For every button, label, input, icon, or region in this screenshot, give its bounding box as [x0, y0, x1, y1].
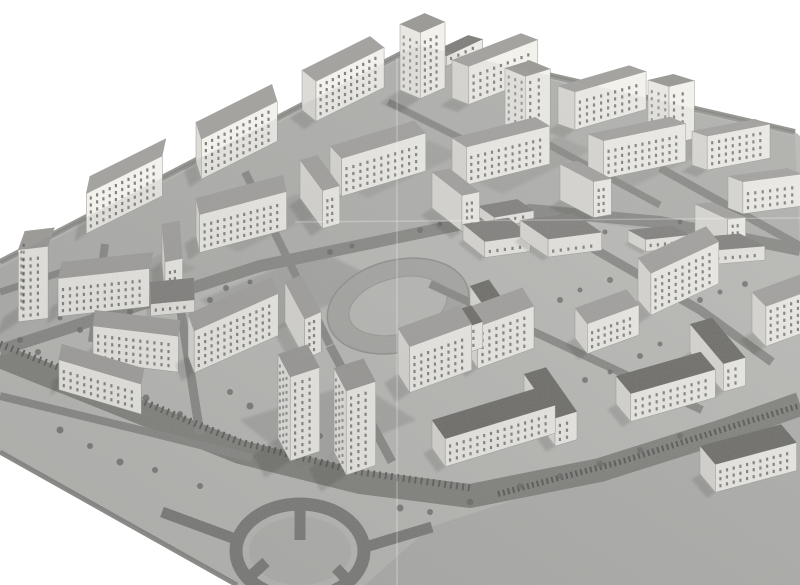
window — [628, 86, 630, 89]
window — [134, 182, 136, 185]
window — [230, 129, 232, 132]
window — [102, 197, 104, 200]
window — [140, 172, 142, 175]
window — [635, 84, 637, 87]
window — [368, 67, 370, 70]
window — [146, 168, 148, 171]
window — [362, 70, 364, 73]
window — [409, 38, 411, 41]
window — [403, 43, 405, 46]
window — [430, 38, 432, 41]
window — [121, 188, 123, 191]
window — [635, 91, 637, 94]
window — [217, 143, 219, 146]
window — [326, 88, 328, 91]
window — [211, 139, 213, 142]
window — [153, 165, 155, 168]
window — [350, 76, 352, 79]
window — [255, 124, 257, 127]
window — [249, 127, 251, 130]
window — [140, 179, 142, 182]
window — [344, 79, 346, 82]
window — [242, 130, 244, 133]
window — [140, 186, 142, 189]
window — [146, 182, 148, 185]
window — [102, 190, 104, 193]
window — [224, 133, 226, 136]
window — [236, 133, 238, 136]
window — [527, 53, 529, 56]
window — [416, 41, 418, 44]
window — [403, 36, 405, 39]
window — [96, 193, 98, 196]
window — [146, 175, 148, 178]
window — [651, 90, 653, 93]
window — [109, 194, 111, 197]
window — [153, 172, 155, 175]
photo-vignette — [0, 45, 800, 585]
window — [217, 136, 219, 139]
window — [435, 35, 437, 38]
window — [224, 140, 226, 143]
window — [658, 92, 660, 95]
window — [127, 192, 129, 195]
window — [368, 60, 370, 63]
photo-grain-and-creases — [0, 45, 800, 585]
window — [682, 99, 684, 102]
window — [267, 111, 269, 114]
window — [255, 117, 257, 120]
window — [356, 73, 358, 76]
window — [682, 92, 684, 95]
window — [249, 120, 251, 123]
window — [109, 187, 111, 190]
architectural-model-scene — [0, 0, 800, 585]
window — [320, 84, 322, 87]
window — [127, 178, 129, 181]
window — [121, 181, 123, 184]
window — [261, 114, 263, 117]
window — [374, 57, 376, 60]
window — [90, 196, 92, 199]
window — [664, 94, 666, 97]
window — [320, 91, 322, 94]
window — [115, 184, 117, 187]
window — [409, 45, 411, 48]
window — [134, 189, 136, 192]
window — [242, 123, 244, 126]
window — [211, 146, 213, 149]
window — [236, 126, 238, 129]
window — [673, 94, 675, 97]
window — [472, 47, 474, 50]
window — [134, 175, 136, 178]
photo-page — [0, 0, 800, 585]
window — [520, 56, 522, 59]
window — [23, 244, 25, 247]
window — [338, 82, 340, 85]
window — [205, 142, 207, 145]
window — [465, 50, 467, 53]
window — [102, 204, 104, 207]
window — [96, 200, 98, 203]
window — [115, 198, 117, 201]
window — [362, 63, 364, 66]
window — [356, 66, 358, 69]
window — [338, 75, 340, 78]
window — [261, 121, 263, 124]
window — [230, 136, 232, 139]
window — [90, 203, 92, 206]
window — [127, 185, 129, 188]
window — [332, 85, 334, 88]
window — [507, 61, 509, 64]
window — [90, 210, 92, 213]
window — [514, 59, 516, 62]
window — [115, 191, 117, 194]
window — [350, 69, 352, 72]
window — [344, 72, 346, 75]
window — [430, 45, 432, 48]
window — [424, 41, 426, 44]
window — [326, 81, 328, 84]
window — [121, 195, 123, 198]
window — [109, 201, 111, 204]
window — [267, 118, 269, 121]
window — [332, 78, 334, 81]
window — [205, 149, 207, 152]
window — [621, 88, 623, 91]
window — [435, 42, 437, 45]
window — [374, 64, 376, 67]
window — [96, 207, 98, 210]
